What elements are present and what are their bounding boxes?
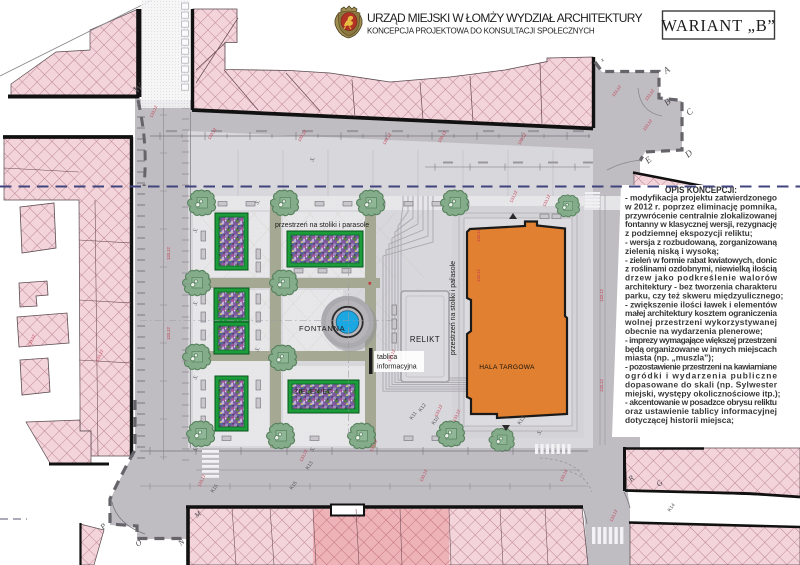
svg-text:FONTANNA: FONTANNA <box>299 324 345 333</box>
svg-text:RELIKT: RELIKT <box>410 335 440 344</box>
svg-text:informacyjna: informacyjna <box>377 364 417 371</box>
svg-text:ZIELENIEC: ZIELENIEC <box>294 389 333 396</box>
svg-text:przestrzeń na stoliki i paraso: przestrzeń na stoliki i parasole <box>275 222 369 229</box>
svg-text:KONCEPCJA PROJEKTOWA DO KONSUL: KONCEPCJA PROJEKTOWA DO KONSULTACJI SPOŁ… <box>367 27 595 36</box>
svg-text:przestrzeń na stoliki i paraso: przestrzeń na stoliki i parasole <box>450 261 457 355</box>
svg-text:133,12: 133,12 <box>476 269 481 282</box>
svg-text:133,12: 133,12 <box>166 247 171 260</box>
svg-text:133,12: 133,12 <box>476 229 481 242</box>
svg-text:dotyczącej historii miejsca;: dotyczącej historii miejsca; <box>625 415 734 425</box>
svg-text:WARIANT „B”: WARIANT „B” <box>661 16 775 35</box>
svg-text:133,12: 133,12 <box>599 379 604 392</box>
svg-text:133,12: 133,12 <box>166 327 171 340</box>
svg-text:133,12: 133,12 <box>599 289 604 302</box>
svg-text:HALA TARGOWA: HALA TARGOWA <box>479 364 535 371</box>
svg-text:URZĄD MIEJSKI W ŁOMŻY WYDZIAŁ: URZĄD MIEJSKI W ŁOMŻY WYDZIAŁ ARCHITEKTU… <box>367 11 643 25</box>
